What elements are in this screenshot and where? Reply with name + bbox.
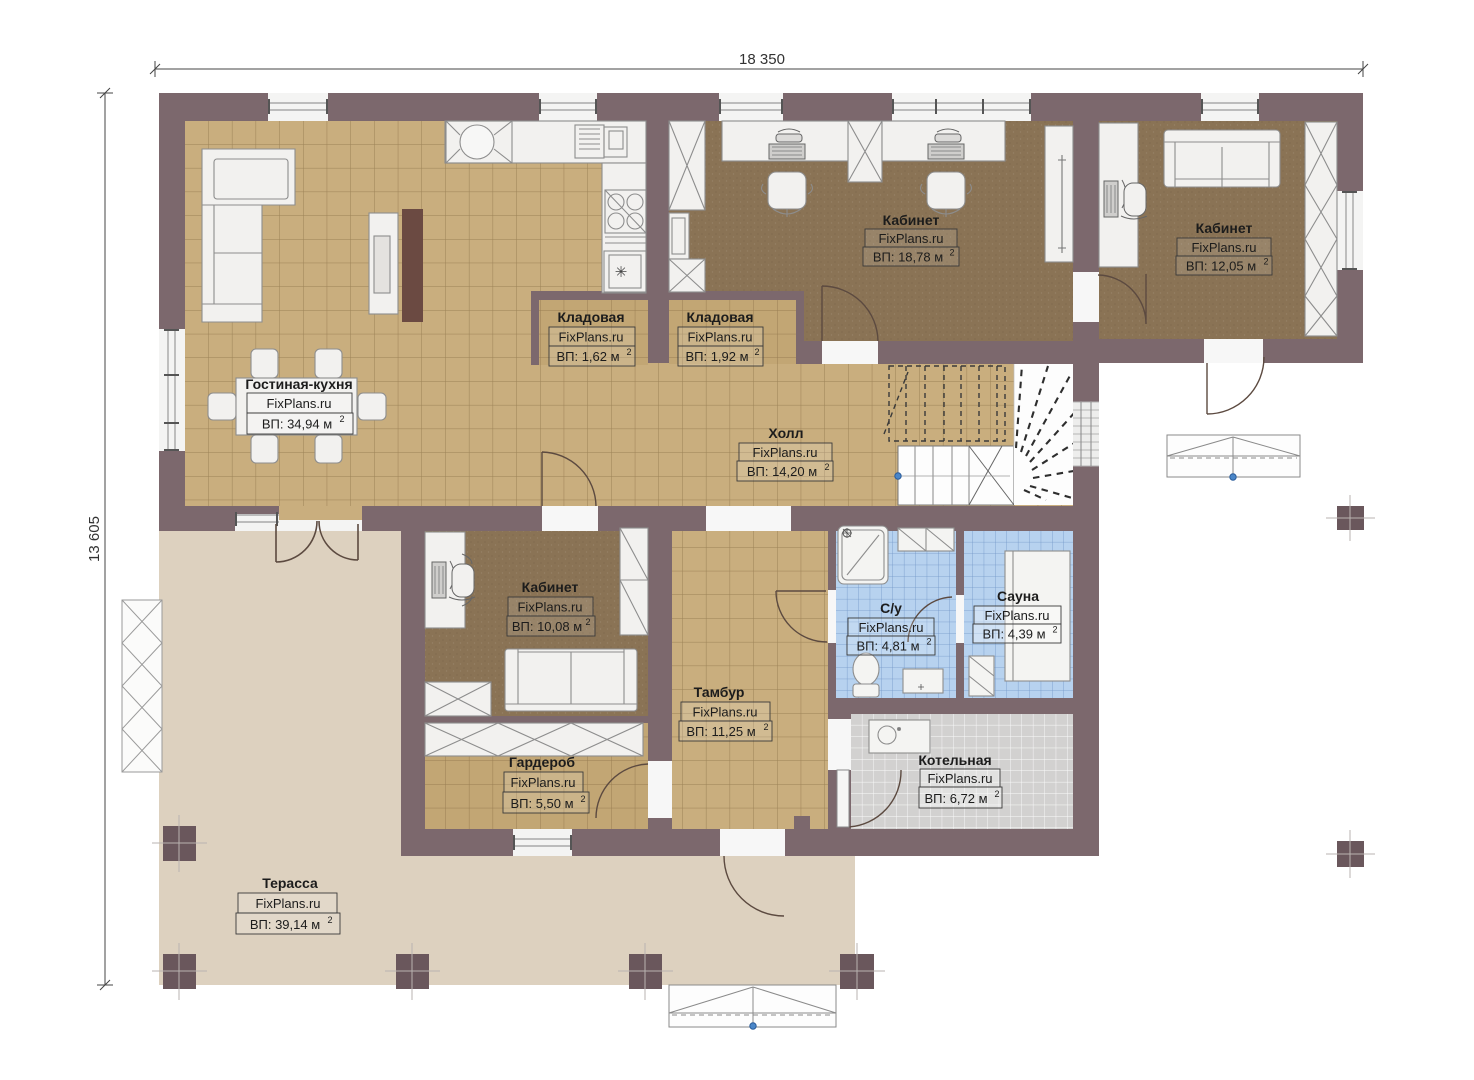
- svg-text:FixPlans.ru: FixPlans.ru: [510, 775, 575, 790]
- svg-text:ВП: 39,14 м: ВП: 39,14 м: [250, 917, 320, 932]
- svg-text:ВП: 1,92 м: ВП: 1,92 м: [685, 349, 748, 364]
- svg-text:2: 2: [585, 617, 590, 627]
- svg-text:FixPlans.ru: FixPlans.ru: [266, 396, 331, 411]
- svg-text:ВП: 12,05 м: ВП: 12,05 м: [1186, 259, 1256, 274]
- svg-text:ВП: 4,39 м: ВП: 4,39 м: [982, 627, 1045, 642]
- svg-text:13 605: 13 605: [86, 516, 103, 562]
- svg-text:ВП: 11,25 м: ВП: 11,25 м: [686, 724, 755, 739]
- svg-text:2: 2: [626, 347, 631, 357]
- svg-text:2: 2: [926, 637, 931, 647]
- svg-text:Терасса: Терасса: [262, 875, 318, 891]
- svg-text:Кладовая: Кладовая: [557, 309, 624, 325]
- svg-text:Кладовая: Кладовая: [686, 309, 753, 325]
- svg-text:Кабинет: Кабинет: [883, 212, 940, 228]
- svg-text:FixPlans.ru: FixPlans.ru: [692, 705, 757, 720]
- svg-text:2: 2: [327, 915, 332, 925]
- svg-text:ВП: 6,72 м: ВП: 6,72 м: [924, 791, 987, 806]
- svg-text:FixPlans.ru: FixPlans.ru: [752, 445, 817, 460]
- svg-text:Кабинет: Кабинет: [522, 579, 579, 595]
- svg-text:✳: ✳: [615, 264, 628, 281]
- svg-text:18 350: 18 350: [739, 51, 785, 68]
- svg-text:ВП: 5,50 м: ВП: 5,50 м: [510, 796, 573, 811]
- svg-text:FixPlans.ru: FixPlans.ru: [984, 608, 1049, 623]
- svg-text:Кабинет: Кабинет: [1196, 220, 1253, 236]
- svg-text:2: 2: [1263, 257, 1268, 267]
- svg-text:ВП: 14,20 м: ВП: 14,20 м: [747, 464, 817, 479]
- svg-text:FixPlans.ru: FixPlans.ru: [858, 620, 923, 635]
- svg-text:ВП: 18,78 м: ВП: 18,78 м: [873, 250, 943, 265]
- svg-text:FixPlans.ru: FixPlans.ru: [878, 231, 943, 246]
- svg-text:2: 2: [994, 789, 999, 799]
- svg-text:Котельная: Котельная: [918, 752, 991, 768]
- svg-text:Сауна: Сауна: [997, 588, 1039, 604]
- svg-text:Холл: Холл: [768, 425, 803, 441]
- svg-text:ВП: 1,62 м: ВП: 1,62 м: [556, 349, 619, 364]
- svg-text:FixPlans.ru: FixPlans.ru: [1191, 240, 1256, 255]
- svg-text:Гардероб: Гардероб: [509, 754, 576, 770]
- svg-text:2: 2: [949, 248, 954, 258]
- svg-text:Гостиная-кухня: Гостиная-кухня: [245, 376, 352, 392]
- svg-text:2: 2: [339, 414, 344, 424]
- svg-text:ВП: 10,08 м: ВП: 10,08 м: [512, 619, 582, 634]
- svg-text:2: 2: [754, 347, 759, 357]
- svg-text:2: 2: [580, 794, 585, 804]
- svg-text:2: 2: [1052, 625, 1057, 635]
- svg-text:FixPlans.ru: FixPlans.ru: [687, 330, 752, 345]
- svg-text:2: 2: [763, 722, 768, 732]
- svg-text:FixPlans.ru: FixPlans.ru: [255, 896, 320, 911]
- svg-text:Тамбур: Тамбур: [694, 684, 745, 700]
- svg-text:FixPlans.ru: FixPlans.ru: [517, 600, 582, 615]
- svg-text:FixPlans.ru: FixPlans.ru: [558, 330, 623, 345]
- svg-text:С/у: С/у: [880, 600, 902, 616]
- svg-text:ВП: 34,94 м: ВП: 34,94 м: [262, 417, 332, 432]
- svg-text:FixPlans.ru: FixPlans.ru: [927, 771, 992, 786]
- svg-text:ВП: 4,81 м: ВП: 4,81 м: [856, 639, 919, 654]
- svg-text:2: 2: [824, 462, 829, 472]
